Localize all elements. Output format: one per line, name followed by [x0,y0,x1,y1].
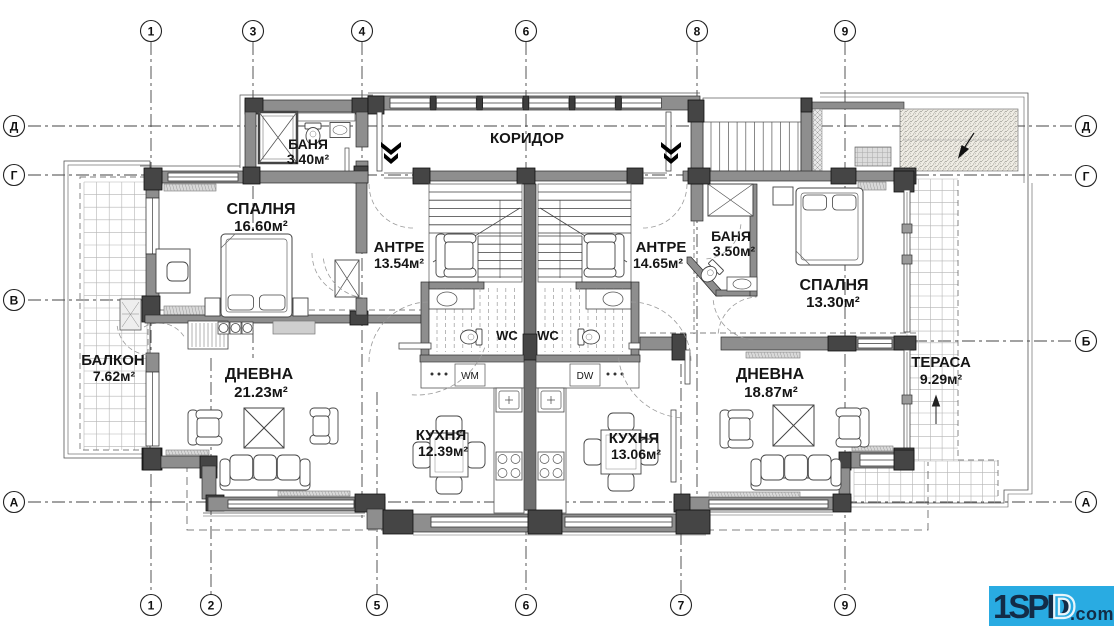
svg-text:В: В [10,294,19,308]
svg-text:7: 7 [678,599,685,613]
svg-text:7.62м²: 7.62м² [93,368,136,384]
svg-text:ДНЕВНА: ДНЕВНА [225,366,294,383]
svg-text:3.50м²: 3.50м² [713,243,756,259]
svg-text:1: 1 [148,25,155,39]
svg-text:6: 6 [523,599,530,613]
svg-text:21.23м²: 21.23м² [234,384,288,401]
svg-text:3.40м²: 3.40м² [287,151,330,167]
svg-text:13.06м²: 13.06м² [611,446,661,462]
svg-text:БАНЯ: БАНЯ [711,228,751,244]
svg-text:DW: DW [577,371,594,382]
svg-text:WM: WM [461,371,479,382]
svg-text:Д: Д [1082,120,1091,134]
svg-text:Г: Г [11,169,18,183]
svg-text:12.39м²: 12.39м² [418,443,468,459]
svg-text:.com: .com [1070,604,1114,624]
svg-text:Д: Д [10,120,19,134]
svg-text:А: А [10,496,19,510]
svg-text:Б: Б [1082,335,1091,349]
svg-text:БАНЯ: БАНЯ [288,136,328,152]
svg-text:КОРИДОР: КОРИДОР [490,130,564,147]
svg-text:9.29м²: 9.29м² [920,371,963,387]
svg-text:КУХНЯ: КУХНЯ [609,430,659,447]
svg-text:СПАЛНЯ: СПАЛНЯ [799,277,868,294]
svg-text:КУХНЯ: КУХНЯ [416,427,466,444]
svg-text:ДНЕВНА: ДНЕВНА [736,366,805,383]
svg-text:А: А [1082,496,1091,510]
svg-text:1: 1 [148,599,155,613]
svg-text:13.30м²: 13.30м² [806,294,860,311]
svg-text:АНТРЕ: АНТРЕ [374,239,425,256]
svg-text:8: 8 [694,25,701,39]
svg-text:18.87м²: 18.87м² [744,384,798,401]
svg-text:6: 6 [523,25,530,39]
svg-text:ТЕРАСА: ТЕРАСА [911,354,971,371]
svg-text:14.65м²: 14.65м² [633,255,683,271]
svg-text:5: 5 [374,599,381,613]
svg-text:16.60м²: 16.60м² [234,218,288,235]
svg-text:WC: WC [496,328,518,343]
svg-text:13.54м²: 13.54м² [374,255,424,271]
svg-text:БАЛКОН: БАЛКОН [81,352,144,369]
svg-text:СПАЛНЯ: СПАЛНЯ [226,201,295,218]
svg-text:9: 9 [842,25,849,39]
svg-text:3: 3 [250,25,257,39]
svg-text:2: 2 [208,599,215,613]
svg-text:4: 4 [359,25,366,39]
svg-text:Г: Г [1083,170,1090,184]
svg-text:АНТРЕ: АНТРЕ [636,239,687,256]
svg-text:9: 9 [842,599,849,613]
svg-text:WC: WC [537,328,559,343]
